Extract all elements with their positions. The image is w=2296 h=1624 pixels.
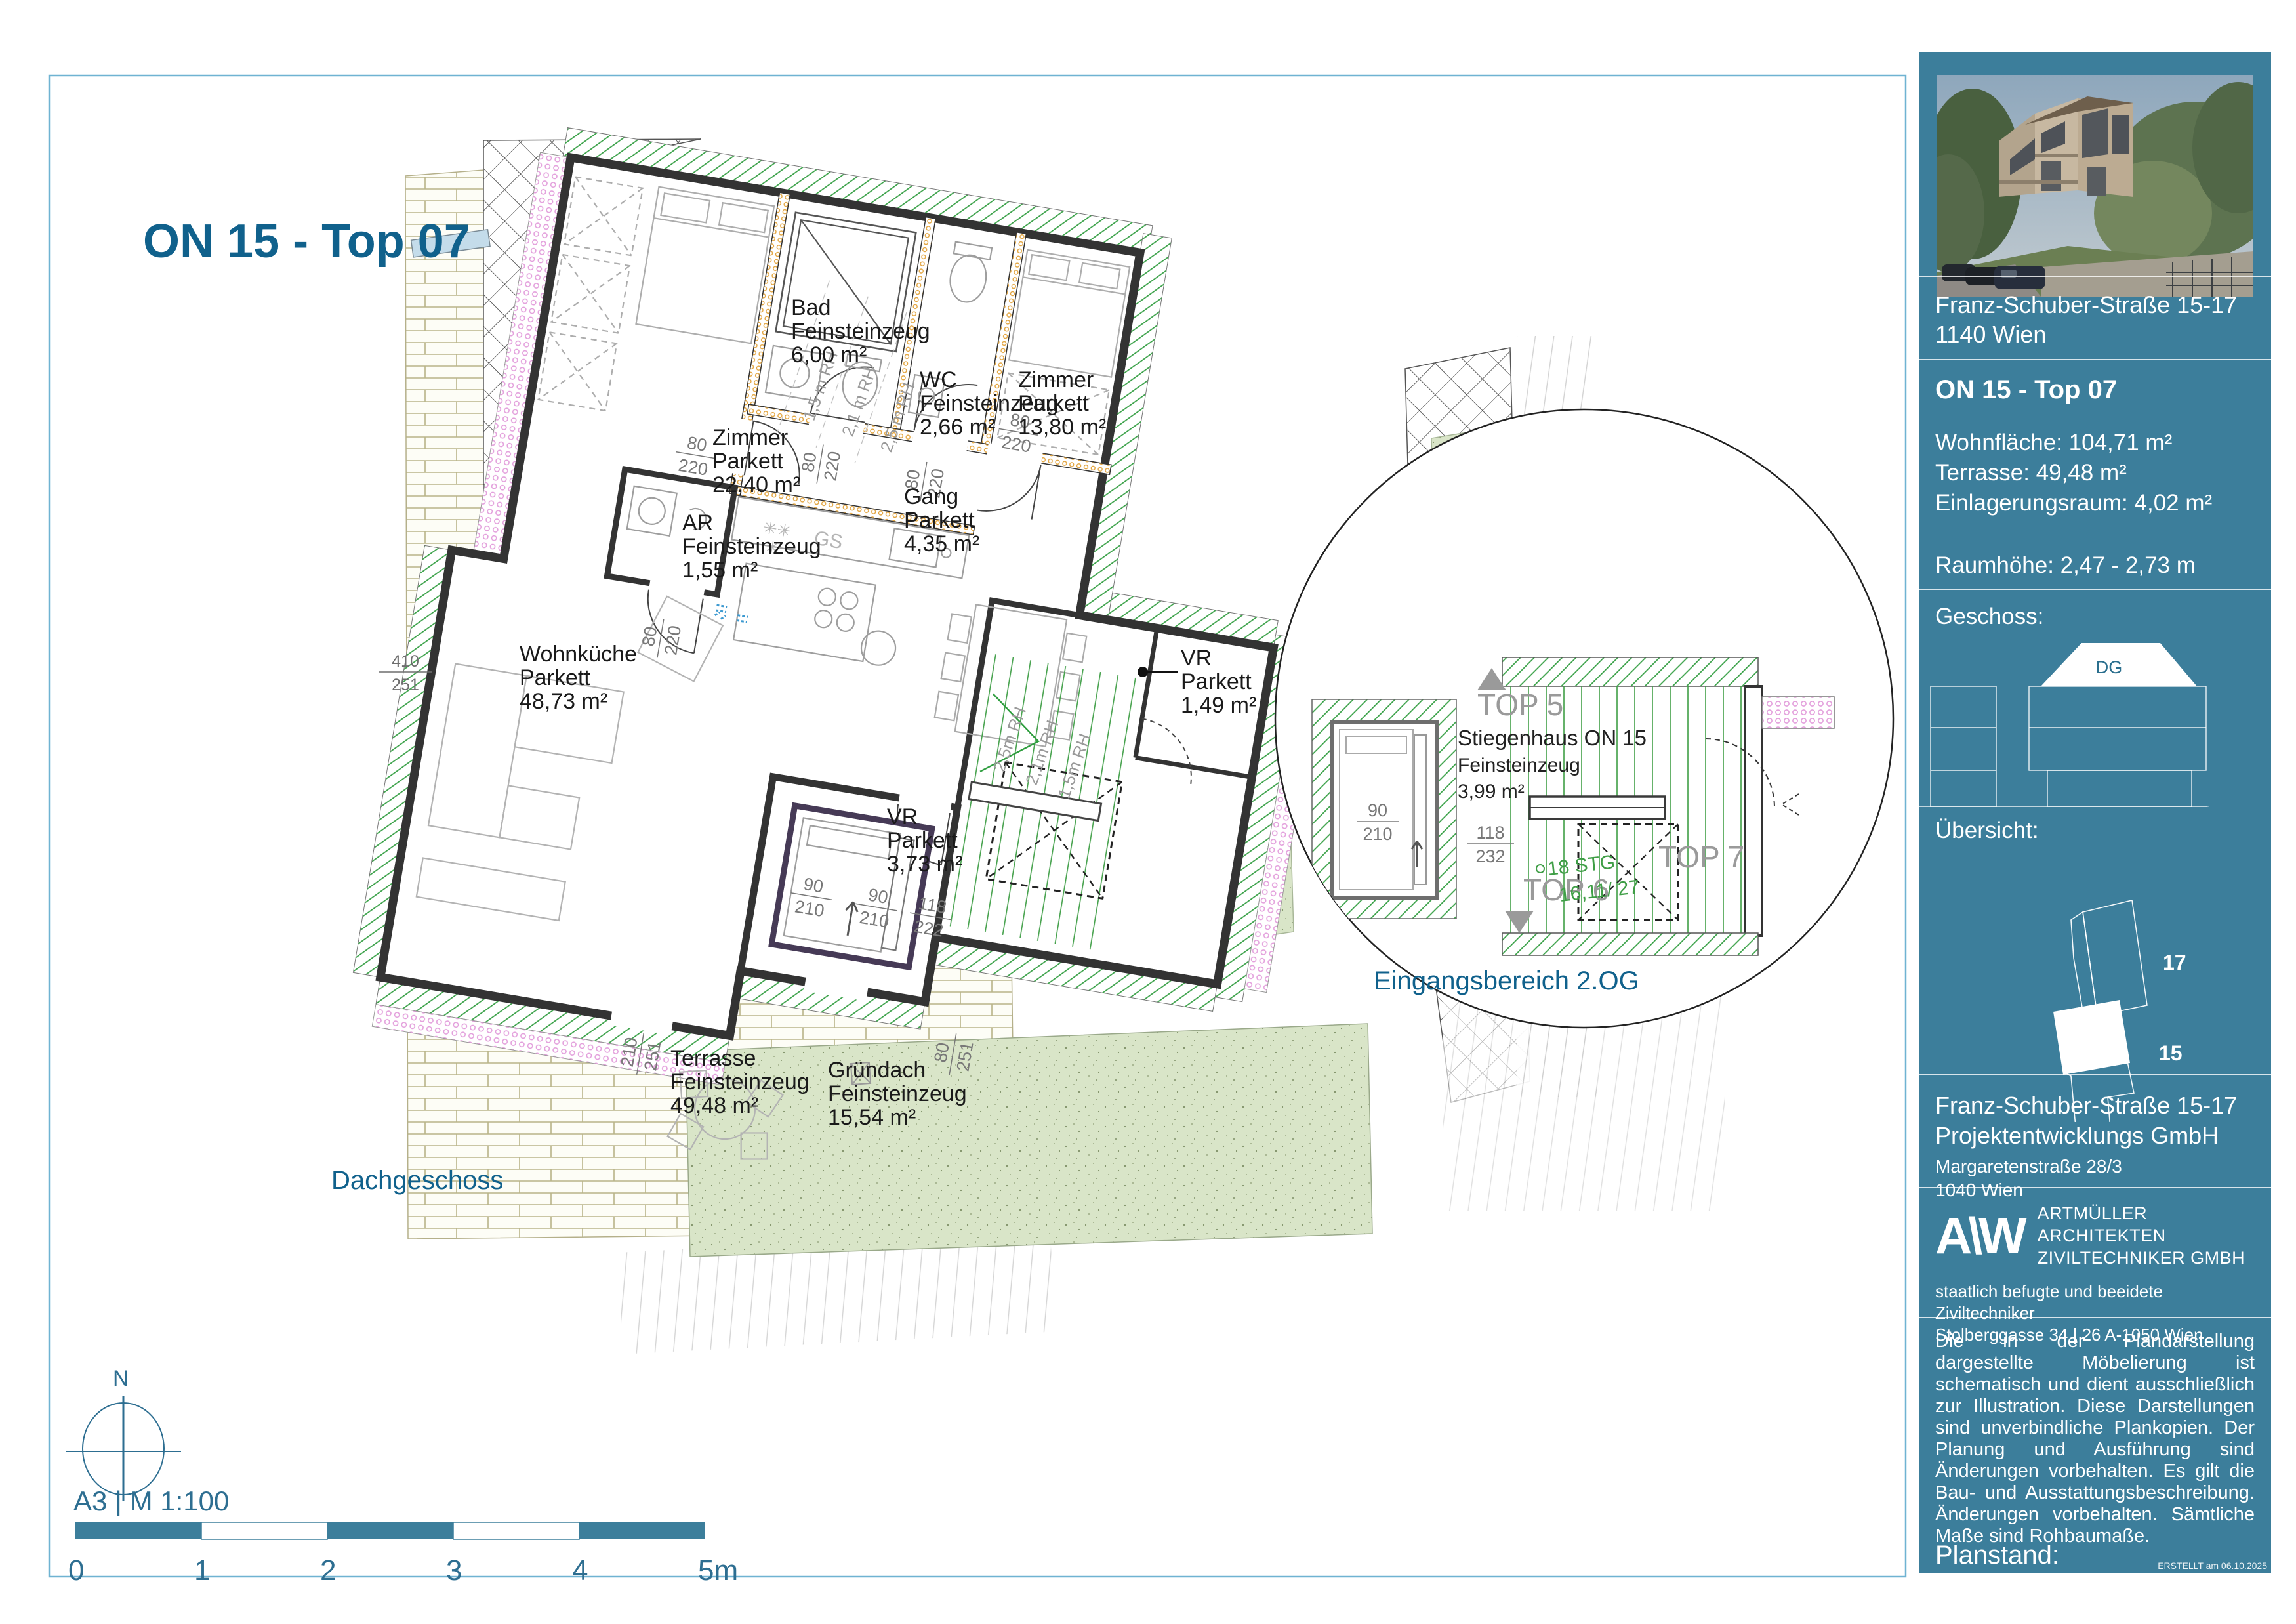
address-line1: Franz-Schuber-Straße 15-17 bbox=[1935, 290, 2255, 320]
architect-logo: A\W bbox=[1935, 1206, 2023, 1266]
site-label-15: 15 bbox=[2159, 1041, 2183, 1065]
area-wohnflaeche: Wohnfläche: 104,71 m² bbox=[1935, 428, 2255, 458]
north-arrow: N bbox=[66, 1366, 181, 1501]
detail-circle: 90 210 TOP 5 Stiegenhaus ON 15 Feinstei bbox=[1275, 409, 1893, 1028]
svg-text:5m: 5m bbox=[698, 1554, 738, 1587]
svg-text:2,66 m²: 2,66 m² bbox=[920, 415, 995, 440]
svg-text:210: 210 bbox=[1363, 824, 1392, 844]
svg-text:3: 3 bbox=[446, 1554, 462, 1587]
developer-line1: Franz-Schuber-Straße 15-17 bbox=[1935, 1091, 2255, 1121]
svg-text:Feinsteinzeug: Feinsteinzeug bbox=[791, 319, 930, 344]
floor-diagram: DG bbox=[1919, 630, 2271, 807]
area-terrasse: Terrasse: 49,48 m² bbox=[1935, 458, 2255, 488]
svg-text:80: 80 bbox=[686, 432, 708, 455]
svg-text:AR: AR bbox=[682, 510, 713, 535]
detail-room-name: Stiegenhaus ON 15 bbox=[1458, 726, 1647, 750]
building-rendering bbox=[1937, 75, 2253, 297]
svg-text:48,73 m²: 48,73 m² bbox=[520, 689, 607, 714]
svg-text:Feinsteinzeug: Feinsteinzeug bbox=[670, 1070, 810, 1094]
floor-caption: Dachgeschoss bbox=[331, 1166, 503, 1195]
svg-text:49,48 m²: 49,48 m² bbox=[670, 1093, 758, 1118]
scale-text: A3 | M 1:100 bbox=[73, 1486, 229, 1516]
scale-ticks: 0 1 2 3 4 5m bbox=[68, 1554, 738, 1587]
room-height: Raumhöhe: 2,47 - 2,73 m bbox=[1935, 552, 2255, 579]
svg-text:Parkett: Parkett bbox=[520, 665, 590, 690]
svg-text:0: 0 bbox=[68, 1554, 84, 1587]
unit-areas: Wohnfläche: 104,71 m² Terrasse: 49,48 m²… bbox=[1935, 428, 2255, 518]
svg-text:80: 80 bbox=[930, 1041, 953, 1064]
developer-block: Franz-Schuber-Straße 15-17 Projektentwic… bbox=[1935, 1091, 2255, 1202]
green-roof bbox=[686, 1024, 1372, 1257]
svg-text:410: 410 bbox=[392, 652, 419, 671]
svg-text:13,80 m²: 13,80 m² bbox=[1018, 415, 1106, 440]
dg-label: DG bbox=[2096, 657, 2123, 677]
svg-text:80: 80 bbox=[798, 451, 821, 474]
svg-text:1,55 m²: 1,55 m² bbox=[682, 558, 758, 583]
svg-text:Parkett: Parkett bbox=[887, 828, 958, 853]
north-label: N bbox=[113, 1366, 129, 1391]
svg-text:Parkett: Parkett bbox=[712, 449, 783, 474]
svg-text:Bad: Bad bbox=[791, 295, 831, 320]
svg-text:WC: WC bbox=[920, 367, 957, 392]
svg-text:1,49 m²: 1,49 m² bbox=[1181, 693, 1256, 718]
svg-text:Parkett: Parkett bbox=[1018, 391, 1089, 416]
svg-text:15,54 m²: 15,54 m² bbox=[828, 1105, 916, 1130]
svg-text:Feinsteinzeug: Feinsteinzeug bbox=[682, 534, 821, 559]
svg-text:232: 232 bbox=[1475, 846, 1505, 866]
detail-caption: Eingangsbereich 2.OG bbox=[1374, 967, 1639, 995]
architect-block: A\W ARTMÜLLER ARCHITEKTEN ZIVILTECHNIKER… bbox=[1935, 1202, 2255, 1346]
project-address: Franz-Schuber-Straße 15-17 1140 Wien bbox=[1935, 290, 2255, 349]
svg-text:118: 118 bbox=[1476, 823, 1504, 843]
architect-line2: ZIVILTECHNIKER GMBH bbox=[2038, 1247, 2255, 1269]
svg-text:1: 1 bbox=[194, 1554, 210, 1587]
svg-text:90: 90 bbox=[802, 874, 825, 897]
site-label-17: 17 bbox=[2163, 951, 2186, 974]
detail-room-area: 3,99 m² bbox=[1458, 781, 1525, 802]
svg-text:6,00 m²: 6,00 m² bbox=[791, 343, 867, 367]
svg-text:Wohnküche: Wohnküche bbox=[520, 642, 637, 667]
architect-line1: ARTMÜLLER ARCHITEKTEN bbox=[2038, 1202, 2255, 1247]
svg-text:Gründach: Gründach bbox=[828, 1058, 926, 1083]
svg-text:90: 90 bbox=[1368, 801, 1387, 820]
svg-text:Zimmer: Zimmer bbox=[712, 425, 788, 450]
site-unit-highlight bbox=[2053, 1000, 2130, 1075]
site-diagram: 17 15 bbox=[1919, 840, 2271, 1122]
disclaimer-text: Die in der Plandarstellung dargestellte … bbox=[1935, 1331, 2255, 1547]
svg-text:4: 4 bbox=[572, 1554, 588, 1587]
svg-text:Parkett: Parkett bbox=[1181, 669, 1252, 694]
address-line2: 1140 Wien bbox=[1935, 320, 2255, 349]
page-title: ON 15 - Top 07 bbox=[143, 215, 470, 268]
area-einlagerungsraum: Einlagerungsraum: 4,02 m² bbox=[1935, 488, 2255, 518]
svg-text:80: 80 bbox=[638, 625, 661, 648]
svg-text:2: 2 bbox=[320, 1554, 336, 1587]
developer-line3: Margaretenstraße 28/3 bbox=[1935, 1155, 2255, 1178]
plan-sheet: GS ✳✳ ✳ bbox=[0, 0, 2296, 1624]
scale-bar: A3 | M 1:100 0 1 2 3 4 5m bbox=[68, 1486, 738, 1587]
detail-room-floor: Feinsteinzeug bbox=[1458, 755, 1580, 776]
detail-top5: TOP 5 bbox=[1477, 688, 1563, 722]
svg-text:Gang: Gang bbox=[904, 484, 958, 509]
svg-text:Zimmer: Zimmer bbox=[1018, 367, 1094, 392]
svg-text:4,35 m²: 4,35 m² bbox=[904, 531, 979, 556]
detail-top7: TOP 7 bbox=[1658, 840, 1744, 874]
building-photo bbox=[1937, 75, 2253, 297]
created-note: ERSTELLT am 06.10.2025 bbox=[2158, 1560, 2267, 1571]
svg-text:3,73 m²: 3,73 m² bbox=[887, 852, 962, 877]
svg-text:Feinsteinzeug: Feinsteinzeug bbox=[828, 1081, 967, 1106]
architect-line3: staatlich befugte und beeidete Ziviltech… bbox=[1935, 1281, 2255, 1324]
svg-text:22,40 m²: 22,40 m² bbox=[712, 472, 800, 497]
svg-text:251: 251 bbox=[392, 676, 419, 694]
svg-text:Terrasse: Terrasse bbox=[670, 1046, 756, 1071]
svg-text:90: 90 bbox=[867, 885, 890, 908]
unit-title: ON 15 - Top 07 bbox=[1935, 375, 2255, 405]
developer-line4: 1040 Wien bbox=[1935, 1178, 2255, 1202]
geschoss-label: Geschoss: bbox=[1935, 604, 2255, 630]
svg-text:VR: VR bbox=[887, 804, 918, 829]
info-panel: Franz-Schuber-Straße 15-17 1140 Wien ON … bbox=[1919, 52, 2271, 1573]
svg-text:Parkett: Parkett bbox=[904, 508, 975, 533]
svg-text:VR: VR bbox=[1181, 646, 1212, 671]
developer-line2: Projektentwicklungs GmbH bbox=[1935, 1121, 2255, 1151]
